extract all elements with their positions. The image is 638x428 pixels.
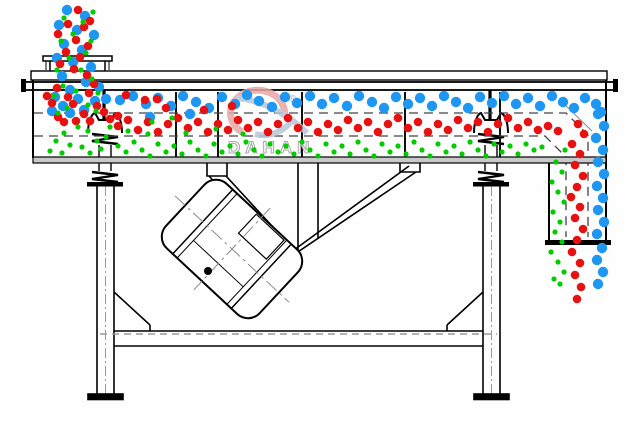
particle-fine bbox=[259, 153, 264, 158]
particle-fine bbox=[88, 38, 93, 43]
particle-medium bbox=[43, 92, 52, 101]
particle-medium bbox=[404, 124, 413, 133]
particle-fine bbox=[115, 143, 120, 148]
particle-flows bbox=[43, 5, 610, 304]
particle-medium bbox=[444, 126, 453, 135]
particle-fine bbox=[411, 139, 416, 144]
particle-fine bbox=[235, 151, 240, 156]
particle-coarse bbox=[62, 5, 72, 15]
particle-coarse bbox=[267, 102, 277, 112]
particle-medium bbox=[153, 95, 162, 104]
particle-fine bbox=[59, 150, 64, 155]
particle-medium bbox=[86, 117, 95, 126]
particle-fine bbox=[80, 19, 85, 24]
particle-coarse bbox=[598, 145, 608, 155]
box-top-cover bbox=[31, 71, 607, 80]
left-mount-bracket bbox=[207, 163, 227, 176]
particle-medium bbox=[74, 6, 83, 15]
particle-fine bbox=[70, 31, 75, 36]
particle-coarse bbox=[499, 91, 509, 101]
particle-coarse bbox=[86, 62, 96, 72]
particle-medium bbox=[69, 100, 78, 109]
particle-fine bbox=[559, 239, 564, 244]
particle-fine bbox=[147, 153, 152, 158]
particle-fine bbox=[163, 149, 168, 154]
particle-fine bbox=[90, 9, 95, 14]
particle-medium bbox=[574, 120, 583, 129]
particle-coarse bbox=[580, 93, 590, 103]
particle-medium bbox=[314, 128, 323, 137]
particle-coarse bbox=[451, 97, 461, 107]
particle-fine bbox=[123, 149, 128, 154]
particle-fine bbox=[555, 259, 560, 264]
particle-fine bbox=[427, 153, 432, 158]
particle-medium bbox=[62, 48, 71, 57]
particle-fine bbox=[475, 147, 480, 152]
particle-fine bbox=[103, 134, 108, 139]
diagram-canvas: ® DAHAN bbox=[0, 0, 638, 428]
particle-fine bbox=[459, 151, 464, 156]
particle-medium bbox=[354, 124, 363, 133]
particle-fine bbox=[379, 141, 384, 146]
particle-coarse bbox=[475, 92, 485, 102]
particle-fine bbox=[149, 119, 154, 124]
particle-fine bbox=[267, 141, 272, 146]
particle-fine bbox=[562, 147, 567, 152]
particle-coarse bbox=[178, 91, 188, 101]
particle-medium bbox=[64, 93, 73, 102]
particle-fine bbox=[179, 151, 184, 156]
particle-fine bbox=[78, 67, 83, 72]
particle-coarse bbox=[592, 255, 602, 265]
particle-fine bbox=[145, 131, 150, 136]
particle-coarse bbox=[415, 93, 425, 103]
particle-medium bbox=[364, 118, 373, 127]
particle-fine bbox=[213, 126, 218, 131]
particle-medium bbox=[114, 122, 123, 131]
particle-fine bbox=[451, 143, 456, 148]
particle-medium bbox=[424, 128, 433, 137]
particle-coarse bbox=[597, 243, 607, 253]
particle-coarse bbox=[592, 181, 602, 191]
particle-coarse bbox=[487, 98, 497, 108]
particle-coarse bbox=[463, 103, 473, 113]
particle-fine bbox=[551, 276, 556, 281]
particle-medium bbox=[224, 126, 233, 135]
particle-medium bbox=[64, 20, 73, 29]
particle-fine bbox=[561, 199, 566, 204]
particle-medium bbox=[122, 91, 131, 100]
particle-fine bbox=[95, 90, 100, 95]
particle-coarse bbox=[305, 91, 315, 101]
particle-fine bbox=[307, 147, 312, 152]
particle-medium bbox=[54, 30, 63, 39]
motor-bolt bbox=[204, 267, 212, 275]
particle-fine bbox=[187, 139, 192, 144]
particle-medium bbox=[72, 117, 81, 126]
particle-medium bbox=[284, 114, 293, 123]
particle-fine bbox=[559, 169, 564, 174]
particle-fine bbox=[169, 115, 174, 120]
particle-medium bbox=[154, 128, 163, 137]
left-leg bbox=[88, 186, 123, 400]
particle-fine bbox=[339, 143, 344, 148]
particle-medium bbox=[106, 115, 115, 124]
particle-fine bbox=[443, 149, 448, 154]
particle-fine bbox=[85, 128, 90, 133]
particle-coarse bbox=[439, 91, 449, 101]
particle-fine bbox=[67, 142, 72, 147]
particle-medium bbox=[85, 89, 94, 98]
particle-coarse bbox=[292, 98, 302, 108]
particle-medium bbox=[580, 130, 589, 139]
particle-fine bbox=[557, 281, 562, 286]
particle-medium bbox=[76, 53, 85, 62]
particle-fine bbox=[523, 141, 528, 146]
particle-coarse bbox=[598, 193, 608, 203]
particle-medium bbox=[554, 127, 563, 136]
particle-medium bbox=[494, 120, 503, 129]
particle-fine bbox=[51, 93, 56, 98]
particle-fine bbox=[548, 249, 553, 254]
particle-coarse bbox=[569, 103, 579, 113]
particle-coarse bbox=[599, 121, 609, 131]
particle-coarse bbox=[185, 109, 195, 119]
particle-medium bbox=[567, 193, 576, 202]
right-foot-plate bbox=[474, 394, 509, 400]
particle-fine bbox=[561, 269, 566, 274]
particle-medium bbox=[464, 124, 473, 133]
particle-coarse bbox=[280, 92, 290, 102]
discharge-streams bbox=[548, 109, 609, 304]
particle-fine bbox=[491, 141, 496, 146]
particle-medium bbox=[200, 106, 209, 115]
particle-fine bbox=[79, 144, 84, 149]
particle-medium bbox=[374, 128, 383, 137]
particle-coarse bbox=[523, 93, 533, 103]
particle-medium bbox=[573, 236, 582, 245]
particle-fine bbox=[55, 110, 60, 115]
particle-medium bbox=[134, 126, 143, 135]
particle-coarse bbox=[57, 71, 67, 81]
particle-fine bbox=[331, 149, 336, 154]
particle-medium bbox=[504, 114, 513, 123]
particle-medium bbox=[124, 116, 133, 125]
particle-medium bbox=[414, 118, 423, 127]
particle-fine bbox=[387, 149, 392, 154]
particle-coarse bbox=[535, 101, 545, 111]
particle-coarse bbox=[599, 169, 609, 179]
particle-fine bbox=[557, 219, 562, 224]
particle-medium bbox=[334, 126, 343, 135]
particle-fine bbox=[54, 67, 59, 72]
particle-fine bbox=[155, 141, 160, 146]
particle-coarse bbox=[592, 229, 602, 239]
particle-medium bbox=[568, 248, 577, 257]
particle-fine bbox=[395, 143, 400, 148]
particle-medium bbox=[114, 112, 123, 121]
particle-coarse bbox=[593, 279, 603, 289]
particle-fine bbox=[66, 55, 71, 60]
particle-fine bbox=[58, 38, 63, 43]
particle-coarse bbox=[317, 99, 327, 109]
particle-fine bbox=[61, 15, 66, 20]
particle-medium bbox=[264, 128, 273, 137]
particle-medium bbox=[454, 116, 463, 125]
particle-fine bbox=[131, 139, 136, 144]
particle-coarse bbox=[591, 133, 601, 143]
particle-medium bbox=[48, 99, 57, 108]
particle-fine bbox=[107, 124, 112, 129]
particle-fine bbox=[251, 147, 256, 152]
right-leg bbox=[474, 186, 509, 400]
particle-medium bbox=[70, 65, 79, 74]
particle-coarse bbox=[217, 92, 227, 102]
rail-right-cap bbox=[613, 79, 618, 92]
particle-fine bbox=[227, 143, 232, 148]
particle-fine bbox=[85, 102, 90, 107]
particle-fine bbox=[323, 141, 328, 146]
particle-fine bbox=[139, 147, 144, 152]
particle-coarse bbox=[329, 93, 339, 103]
particle-fine bbox=[483, 153, 488, 158]
particle-medium bbox=[204, 128, 213, 137]
particle-fine bbox=[171, 143, 176, 148]
particle-fine bbox=[240, 131, 245, 136]
top-deck-oversize bbox=[115, 90, 606, 122]
particle-medium bbox=[576, 259, 585, 268]
particle-medium bbox=[514, 124, 523, 133]
particle-coarse bbox=[379, 103, 389, 113]
particle-fine bbox=[243, 139, 248, 144]
particle-coarse bbox=[598, 267, 608, 277]
particle-fine bbox=[467, 139, 472, 144]
particle-fine bbox=[355, 139, 360, 144]
particle-coarse bbox=[558, 97, 568, 107]
particle-medium bbox=[573, 295, 582, 304]
left-gusset bbox=[114, 292, 150, 331]
particle-fine bbox=[211, 141, 216, 146]
particle-fine bbox=[507, 143, 512, 148]
particle-fine bbox=[64, 105, 69, 110]
particle-medium bbox=[576, 203, 585, 212]
particle-medium bbox=[324, 120, 333, 129]
particle-coarse bbox=[342, 101, 352, 111]
particle-fine bbox=[94, 138, 99, 143]
particle-fine bbox=[291, 151, 296, 156]
particle-fine bbox=[183, 130, 188, 135]
particle-medium bbox=[228, 102, 237, 111]
particle-medium bbox=[53, 84, 62, 93]
particle-fine bbox=[275, 149, 280, 154]
particle-fine bbox=[347, 151, 352, 156]
particle-medium bbox=[274, 120, 283, 129]
particle-fine bbox=[403, 151, 408, 156]
particle-medium bbox=[434, 120, 443, 129]
particle-medium bbox=[571, 271, 580, 280]
particle-coarse bbox=[391, 92, 401, 102]
particle-medium bbox=[56, 60, 65, 69]
particle-medium bbox=[162, 104, 171, 113]
particle-medium bbox=[394, 114, 403, 123]
particle-coarse bbox=[254, 96, 264, 106]
particle-coarse bbox=[427, 101, 437, 111]
particle-fine bbox=[195, 147, 200, 152]
particle-fine bbox=[435, 141, 440, 146]
particle-fine bbox=[499, 149, 504, 154]
particle-medium bbox=[576, 150, 585, 159]
right-gusset bbox=[447, 292, 483, 331]
particle-fine bbox=[283, 143, 288, 148]
particle-coarse bbox=[403, 99, 413, 109]
particle-medium bbox=[294, 124, 303, 133]
particle-fine bbox=[371, 153, 376, 158]
particle-medium bbox=[80, 110, 89, 119]
particle-medium bbox=[484, 128, 493, 137]
particle-fine bbox=[61, 130, 66, 135]
particle-medium bbox=[534, 126, 543, 135]
cross-beam bbox=[100, 331, 497, 346]
linear-vibrating-screen-diagram: ® DAHAN bbox=[0, 0, 638, 428]
particle-coarse bbox=[54, 20, 64, 30]
particle-medium bbox=[474, 118, 483, 127]
particle-coarse bbox=[511, 99, 521, 109]
particle-fine bbox=[219, 149, 224, 154]
rail-left-cap bbox=[21, 79, 26, 92]
particle-fine bbox=[363, 147, 368, 152]
particle-coarse bbox=[101, 94, 111, 104]
particle-fine bbox=[555, 189, 560, 194]
particle-fine bbox=[83, 50, 88, 55]
particle-coarse bbox=[367, 97, 377, 107]
particle-coarse bbox=[599, 217, 609, 227]
particle-fine bbox=[125, 128, 130, 133]
particle-medium bbox=[568, 140, 577, 149]
particle-fine bbox=[87, 150, 92, 155]
particle-medium bbox=[100, 108, 109, 117]
particle-medium bbox=[174, 114, 183, 123]
particle-medium bbox=[344, 116, 353, 125]
particle-coarse bbox=[191, 97, 201, 107]
particle-fine bbox=[419, 147, 424, 152]
particle-fine bbox=[299, 139, 304, 144]
particle-medium bbox=[544, 122, 553, 131]
top-rail bbox=[24, 82, 616, 90]
left-foot-plate bbox=[88, 394, 123, 400]
particle-medium bbox=[579, 225, 588, 234]
particle-coarse bbox=[242, 90, 252, 100]
particle-medium bbox=[304, 118, 313, 127]
particle-fine bbox=[47, 148, 52, 153]
particle-medium bbox=[254, 118, 263, 127]
particle-medium bbox=[524, 118, 533, 127]
particle-fine bbox=[539, 144, 544, 149]
particle-medium bbox=[72, 36, 81, 45]
particle-fine bbox=[60, 83, 65, 88]
particle-medium bbox=[194, 118, 203, 127]
particle-fine bbox=[515, 151, 520, 156]
particle-fine bbox=[531, 147, 536, 152]
particle-fine bbox=[53, 138, 58, 143]
particle-medium bbox=[571, 161, 580, 170]
particle-medium bbox=[579, 172, 588, 181]
particle-coarse bbox=[593, 109, 603, 119]
particle-fine bbox=[93, 108, 98, 113]
particle-coarse bbox=[354, 91, 364, 101]
particle-fine bbox=[203, 153, 208, 158]
particle-medium bbox=[384, 120, 393, 129]
particle-coarse bbox=[593, 157, 603, 167]
middle-deck-mediums bbox=[114, 114, 563, 137]
particle-fine bbox=[315, 153, 320, 158]
particle-fine bbox=[98, 146, 103, 151]
particle-medium bbox=[234, 116, 243, 125]
particle-fine bbox=[549, 179, 554, 184]
particle-fine bbox=[75, 124, 80, 129]
particle-medium bbox=[60, 118, 69, 127]
particle-fine bbox=[73, 88, 78, 93]
particle-fine bbox=[89, 76, 94, 81]
particle-medium bbox=[577, 283, 586, 292]
particle-fine bbox=[552, 229, 557, 234]
particle-fine bbox=[550, 209, 555, 214]
particle-fine bbox=[553, 159, 558, 164]
particle-medium bbox=[244, 124, 253, 133]
particle-medium bbox=[141, 96, 150, 105]
particle-coarse bbox=[547, 91, 557, 101]
particle-medium bbox=[164, 120, 173, 129]
particle-medium bbox=[573, 183, 582, 192]
particle-coarse bbox=[593, 205, 603, 215]
particle-medium bbox=[571, 214, 580, 223]
